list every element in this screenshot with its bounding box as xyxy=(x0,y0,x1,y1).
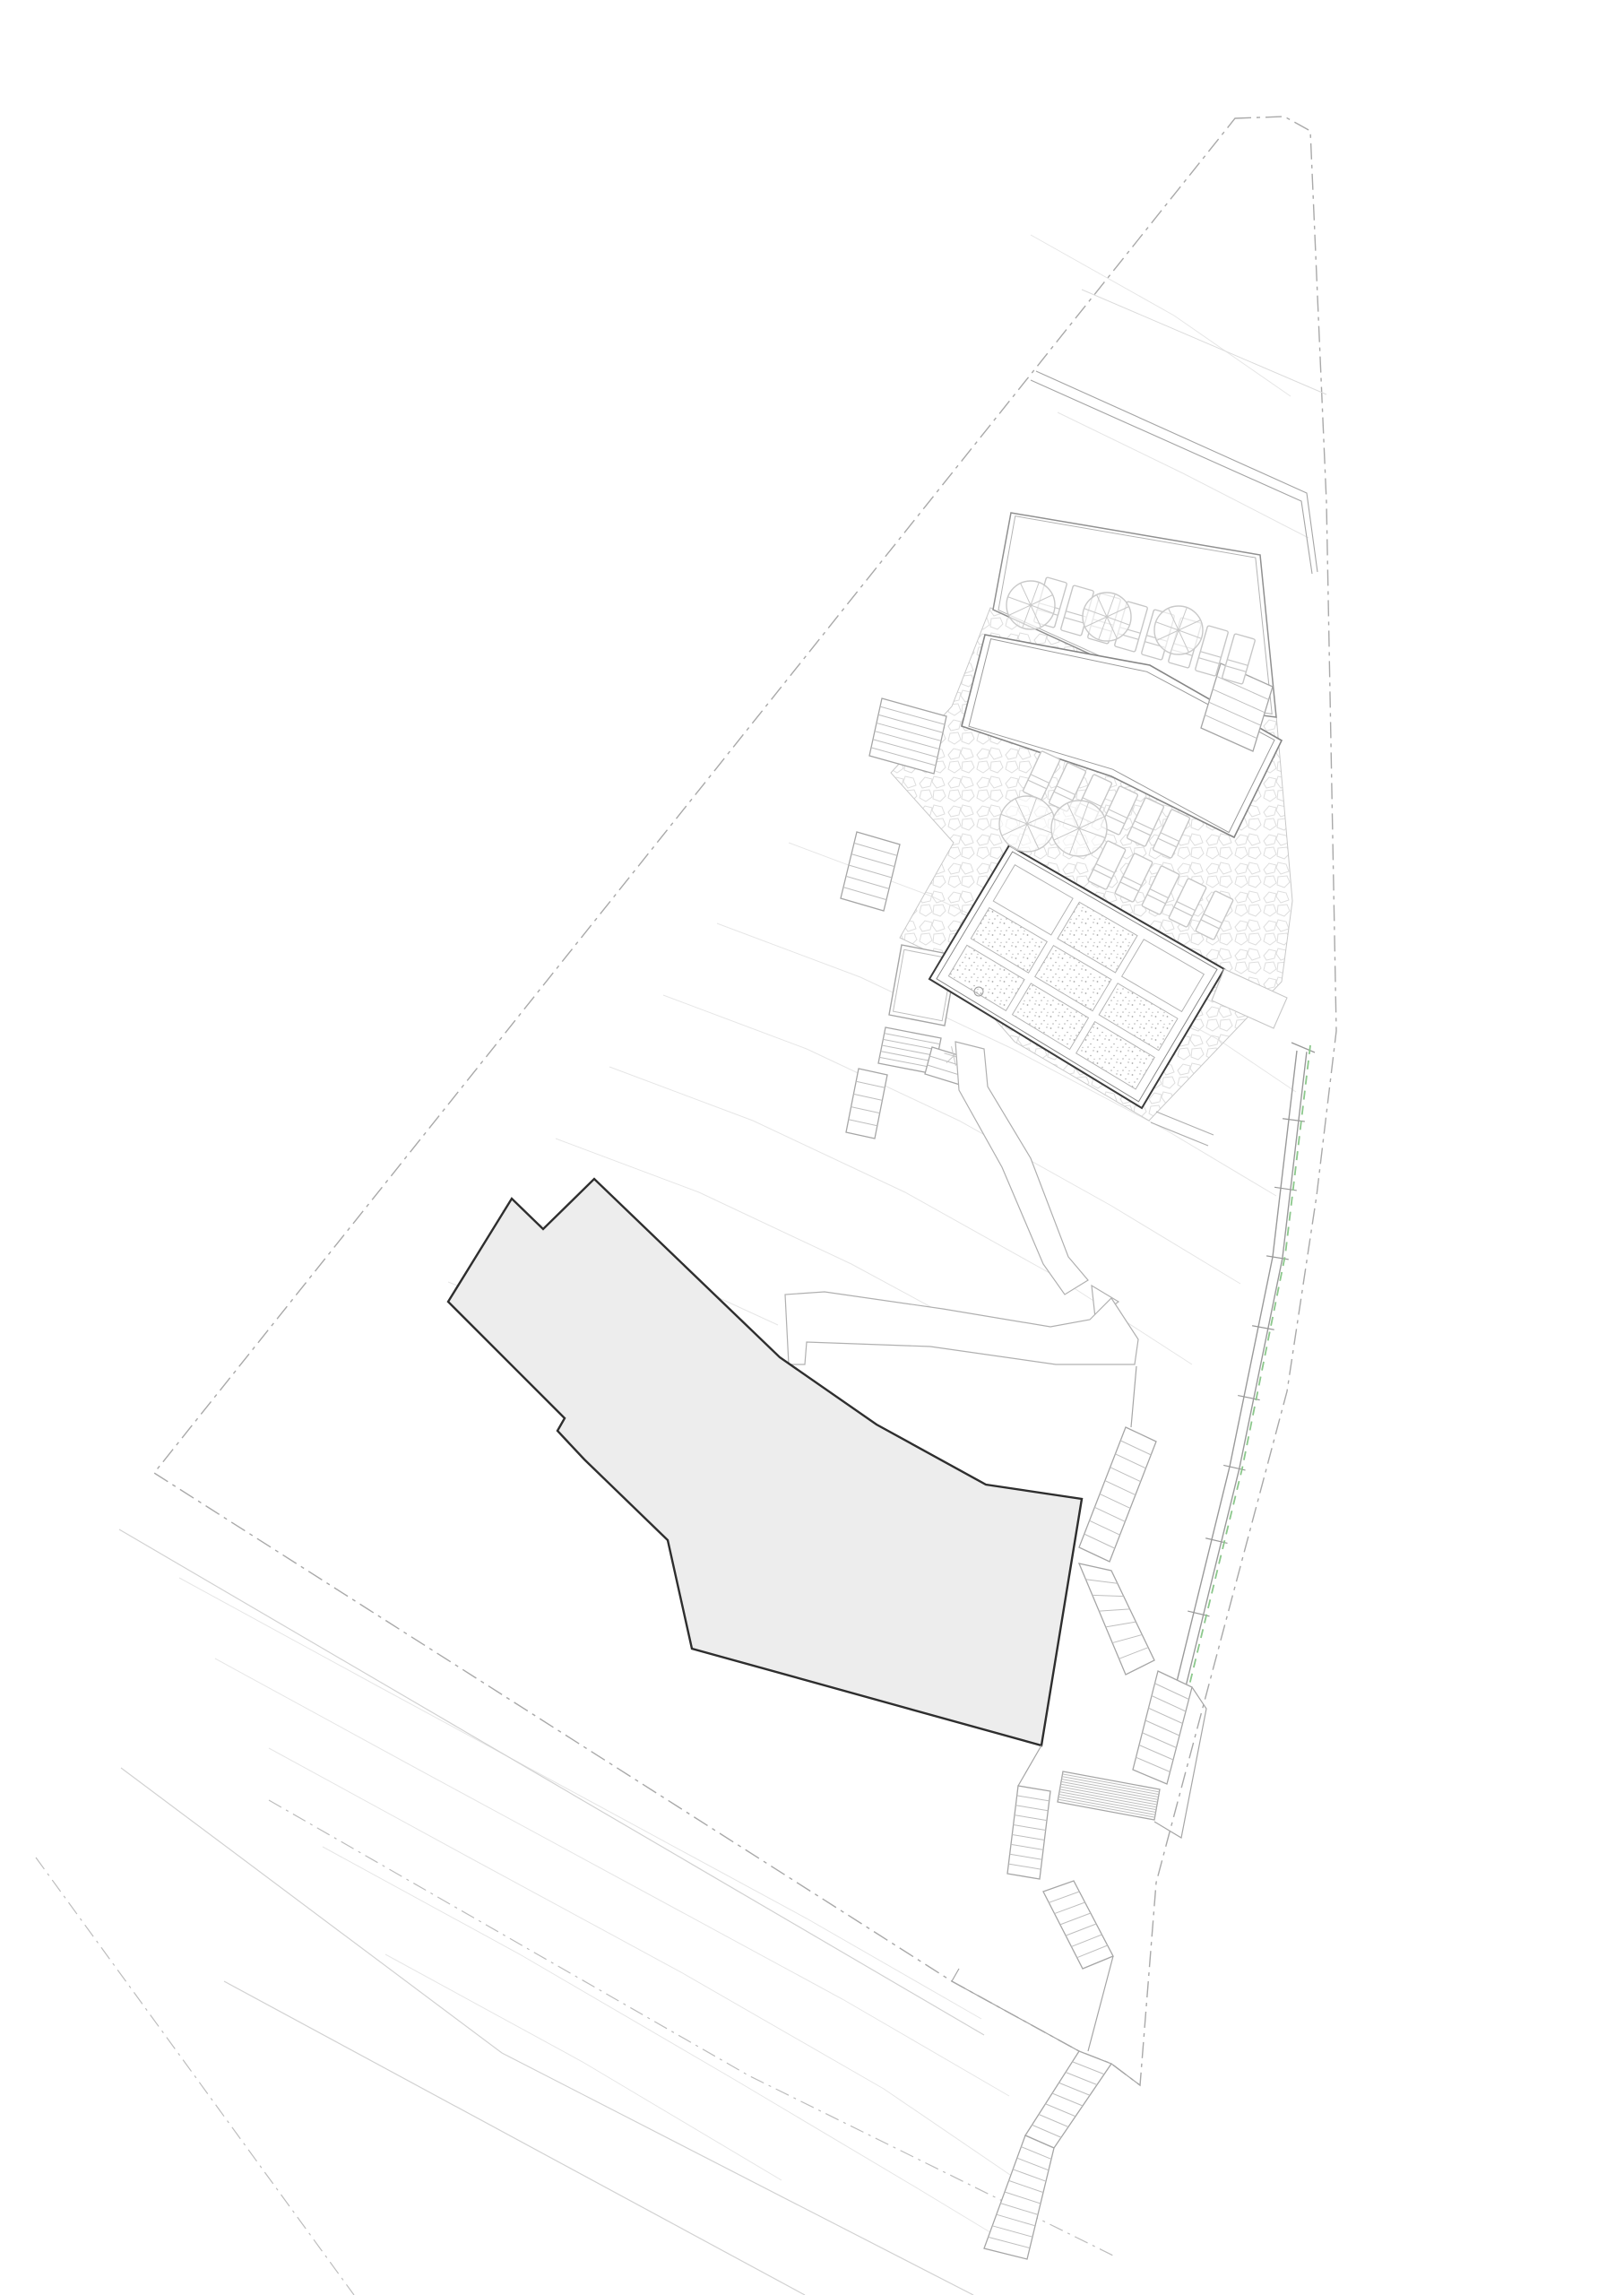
switchback-stair-flight xyxy=(1133,1671,1192,1784)
road-edge-line xyxy=(224,1981,805,2295)
lift-rail-cap xyxy=(1291,1043,1315,1052)
lift-route-dashed-line xyxy=(1188,1045,1310,1689)
retaining-wall xyxy=(1131,1366,1136,1427)
old-wall-faint-line xyxy=(1082,290,1326,394)
terrace-stair-flight xyxy=(869,698,946,774)
parasol-umbrella xyxy=(1154,606,1203,654)
garden-path xyxy=(785,1292,1138,1364)
main-house-footprint xyxy=(448,1179,1082,1745)
road-centerline-dashdot xyxy=(36,1858,354,2295)
garden-path xyxy=(955,1042,1088,1295)
site-plan-drawing xyxy=(0,0,1624,2295)
garden-stair-flight xyxy=(846,1069,887,1139)
switchback-stair-flight xyxy=(1007,1786,1050,1879)
terrace-stair-flight xyxy=(841,832,900,911)
retaining-wall xyxy=(1111,2064,1140,2085)
retaining-wall xyxy=(1088,1956,1113,2051)
lower-boundary-dashdot xyxy=(269,1800,1113,2256)
lift-landing-edge xyxy=(1156,1112,1214,1135)
retaining-wall xyxy=(1018,1745,1041,1786)
site-contour-line xyxy=(215,1658,1009,2096)
switchback-stair-flight xyxy=(1058,1771,1160,1820)
lift-landing-edge xyxy=(1151,1122,1208,1146)
switchback-stair-flight xyxy=(1079,1563,1154,1675)
site-contour-line xyxy=(1058,412,1309,538)
parasol-umbrella xyxy=(1051,801,1107,856)
retaining-wall xyxy=(952,1969,1079,2051)
site-plan-page xyxy=(0,0,1624,2295)
site-contour-line xyxy=(385,1954,782,2180)
road-edge-line xyxy=(121,1768,973,2295)
parasol-umbrella xyxy=(1006,581,1055,629)
cliff-stair-flight xyxy=(1025,2051,1111,2148)
parasol-umbrella xyxy=(999,796,1055,852)
site-contour-line xyxy=(1031,235,1291,396)
switchback-stair-flight xyxy=(1079,1427,1156,1562)
parasol-umbrella xyxy=(1083,593,1131,641)
inclined-lift-rail xyxy=(1176,1051,1307,1688)
switchback-stair-flight xyxy=(1043,1881,1113,1969)
site-contour-line xyxy=(323,1847,1002,2239)
